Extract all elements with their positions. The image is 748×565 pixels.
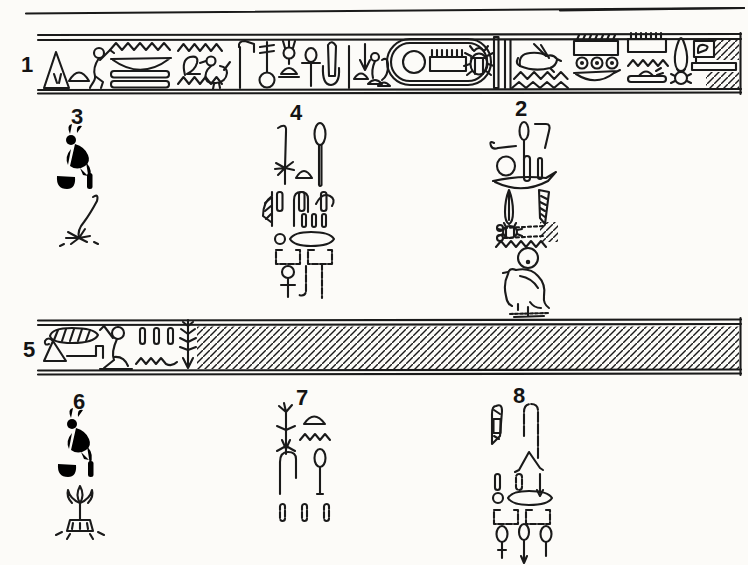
- glyph-down-arrow: [354, 44, 370, 79]
- column-7: 7: [271, 385, 330, 521]
- damaged-hatched-area: [197, 327, 739, 370]
- glyph-rings-and-bowl: [574, 35, 620, 80]
- glyph-bowl-stroke: [57, 173, 93, 189]
- glyph-three-strokes: [140, 328, 173, 344]
- column-8-label: 8: [513, 383, 525, 408]
- inscription-figure: 1: [0, 0, 748, 565]
- glyph-comb-sign: [430, 50, 466, 71]
- glyph-ankh: [302, 48, 320, 86]
- glyph-three-strokes: [280, 504, 329, 521]
- glyph-sun-disk: [518, 248, 538, 268]
- glyph-bread-loaf: [296, 171, 312, 178]
- band-5-label: 5: [23, 337, 35, 362]
- glyph-pestle: [671, 38, 691, 84]
- glyph-rooted-plant: [271, 403, 295, 454]
- column-2: 2: [490, 96, 558, 317]
- glyph-damaged-end: [692, 38, 739, 88]
- band-1: 1: [21, 33, 741, 94]
- glyph-water-ripples: [300, 434, 330, 440]
- glyph-double-mat-bars: [111, 71, 169, 88]
- glyph-falcon: [503, 269, 549, 310]
- glyph-bread-loaf: [69, 73, 89, 82]
- glyph-bowl-stroke: [58, 461, 94, 477]
- glyph-hatched-knife: [492, 405, 502, 444]
- glyph-three-jars: [489, 524, 554, 563]
- glyph-three-small-strokes: [302, 214, 326, 227]
- glyph-double-stroke: [505, 40, 511, 88]
- glyph-cartouche: [387, 37, 499, 88]
- glyph-water-ripples: [496, 241, 546, 247]
- glyph-circle-cross-hook-stroke: [281, 264, 322, 298]
- glyph-sekhem-staff: [260, 42, 275, 88]
- glyph-long-crook: [524, 404, 538, 458]
- top-rule: [26, 8, 744, 14]
- glyph-mace: [315, 123, 326, 186]
- band-5: 5: [23, 318, 741, 375]
- column-3-label: 3: [71, 104, 83, 129]
- column-2-label: 2: [515, 96, 527, 121]
- column-6: 6: [51, 389, 104, 539]
- glyph-bowl: [111, 58, 171, 70]
- glyph-triangle-bracket: [44, 339, 103, 362]
- glyph-dagger: [323, 42, 339, 85]
- glyph-hare: [512, 44, 568, 88]
- glyph-crested-bird: [51, 121, 91, 181]
- glyph-kneeling-man: [100, 326, 132, 369]
- glyph-water-ripples: [110, 43, 170, 50]
- glyph-plant-stem: [60, 196, 98, 246]
- figure-page: 1: [0, 0, 748, 565]
- glyph-ring-and-lens: [275, 232, 334, 246]
- glyph-tent-triangle: [44, 52, 69, 88]
- glyph-ring-and-lens: [493, 491, 552, 505]
- glyph-hook: [280, 452, 296, 494]
- glyph-lotus-on-mound: [56, 486, 104, 539]
- column-7-label: 7: [296, 385, 308, 410]
- column-3: 3: [51, 104, 98, 246]
- column-4: 4: [263, 100, 334, 298]
- column-6-label: 6: [73, 389, 85, 414]
- glyph-three-strokes: [277, 192, 327, 211]
- glyph-tree: [180, 320, 196, 368]
- glyph-reed-stem: [275, 126, 294, 184]
- glyph-crested-bird: [51, 405, 92, 465]
- glyph-sun-disk: [403, 51, 425, 73]
- glyph-arm-and-mace: [490, 118, 552, 161]
- glyph-open-boxes: [494, 510, 550, 524]
- glyph-hatch-patch: [53, 357, 96, 367]
- glyph-mace: [315, 449, 326, 494]
- glyph-hatched-oval: [50, 328, 98, 343]
- column-8: 8: [489, 383, 554, 563]
- glyph-adze-staff: [239, 41, 254, 88]
- glyph-comb-box: [628, 33, 668, 82]
- glyph-head-standard: [279, 40, 299, 77]
- glyph-bread-loaf: [304, 417, 325, 425]
- column-4-label: 4: [290, 100, 303, 125]
- glyph-open-boxes: [276, 250, 332, 264]
- glyph-base-strokes: [510, 307, 548, 317]
- band-1-label: 1: [21, 52, 33, 77]
